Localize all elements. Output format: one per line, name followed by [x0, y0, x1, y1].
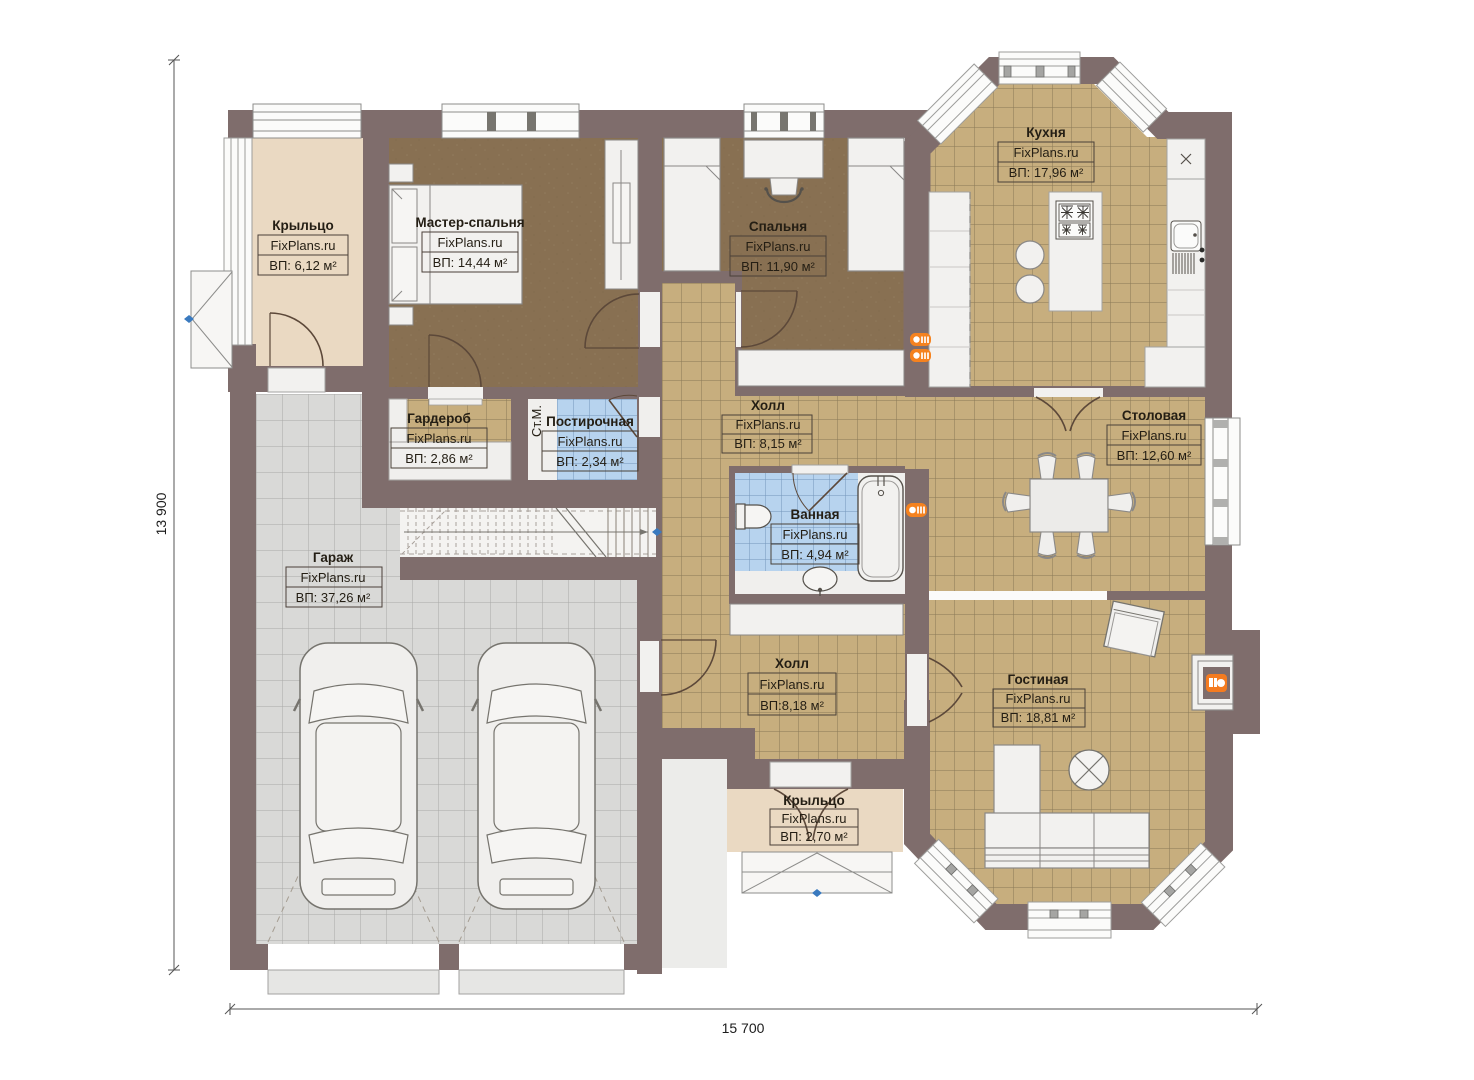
svg-text:FixPlans.ru: FixPlans.ru: [437, 235, 502, 250]
svg-text:ВП: 2,34 м²: ВП: 2,34 м²: [556, 454, 624, 469]
svg-text:Холл: Холл: [751, 398, 785, 413]
svg-text:FixPlans.ru: FixPlans.ru: [1005, 691, 1070, 706]
svg-text:FixPlans.ru: FixPlans.ru: [759, 677, 824, 692]
svg-text:Постирочная: Постирочная: [546, 414, 634, 429]
svg-text:Холл: Холл: [775, 656, 809, 671]
svg-text:FixPlans.ru: FixPlans.ru: [745, 239, 810, 254]
svg-text:FixPlans.ru: FixPlans.ru: [735, 417, 800, 432]
svg-text:ВП:8,18 м²: ВП:8,18 м²: [760, 698, 824, 713]
svg-text:ВП: 6,12 м²: ВП: 6,12 м²: [269, 258, 337, 273]
svg-text:Спальня: Спальня: [749, 219, 807, 234]
svg-text:FixPlans.ru: FixPlans.ru: [270, 238, 335, 253]
svg-text:Мастер-спальня: Мастер-спальня: [415, 215, 524, 230]
svg-text:Ванная: Ванная: [791, 507, 840, 522]
svg-text:Гардероб: Гардероб: [407, 411, 471, 426]
svg-text:Кухня: Кухня: [1026, 125, 1065, 140]
svg-text:Столовая: Столовая: [1122, 408, 1186, 423]
svg-text:FixPlans.ru: FixPlans.ru: [1121, 428, 1186, 443]
svg-text:13 900: 13 900: [153, 492, 169, 535]
svg-text:ВП: 14,44 м²: ВП: 14,44 м²: [433, 255, 508, 270]
svg-text:FixPlans.ru: FixPlans.ru: [300, 570, 365, 585]
svg-text:FixPlans.ru: FixPlans.ru: [782, 527, 847, 542]
svg-text:ВП: 2,70 м²: ВП: 2,70 м²: [780, 829, 848, 844]
svg-text:ВП: 37,26 м²: ВП: 37,26 м²: [296, 590, 371, 605]
svg-text:ВП: 12,60 м²: ВП: 12,60 м²: [1117, 448, 1192, 463]
svg-text:FixPlans.ru: FixPlans.ru: [781, 811, 846, 826]
svg-text:Гостиная: Гостиная: [1007, 672, 1068, 687]
svg-text:FixPlans.ru: FixPlans.ru: [557, 434, 622, 449]
svg-text:Крыльцо: Крыльцо: [272, 218, 333, 233]
svg-text:FixPlans.ru: FixPlans.ru: [406, 431, 471, 446]
svg-text:FixPlans.ru: FixPlans.ru: [1013, 145, 1078, 160]
svg-text:15 700: 15 700: [722, 1020, 765, 1036]
svg-text:Крыльцо: Крыльцо: [783, 793, 844, 808]
svg-text:ВП: 2,86 м²: ВП: 2,86 м²: [405, 451, 473, 466]
svg-text:ВП: 17,96 м²: ВП: 17,96 м²: [1009, 165, 1084, 180]
svg-text:ВП: 18,81 м²: ВП: 18,81 м²: [1001, 710, 1076, 725]
svg-text:ВП: 11,90 м²: ВП: 11,90 м²: [741, 259, 815, 274]
svg-text:ВП: 8,15 м²: ВП: 8,15 м²: [734, 436, 802, 451]
svg-text:Гараж: Гараж: [313, 550, 354, 565]
svg-text:ВП: 4,94 м²: ВП: 4,94 м²: [781, 547, 849, 562]
